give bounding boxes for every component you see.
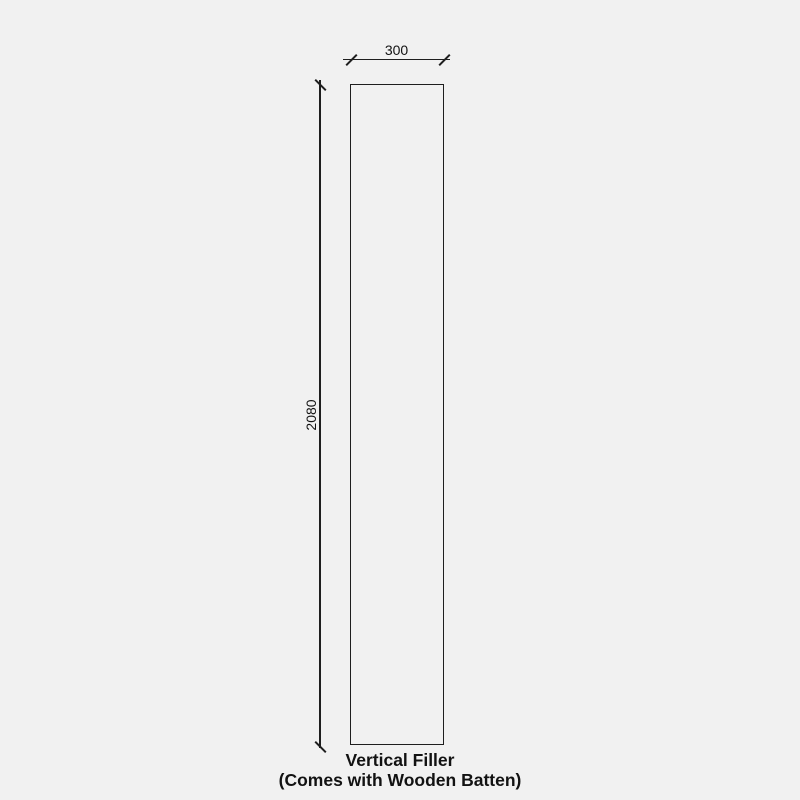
caption-line-2: (Comes with Wooden Batten) <box>200 771 600 791</box>
width-dimension-label: 300 <box>343 42 450 58</box>
panel-outline <box>350 84 444 745</box>
caption: Vertical Filler (Comes with Wooden Batte… <box>200 751 600 790</box>
width-dimension-line <box>343 59 450 61</box>
height-dimension-line <box>319 80 321 748</box>
height-dimension-label: 2080 <box>303 399 319 430</box>
drawing-canvas: 300 2080 Vertical Filler (Comes with Woo… <box>0 0 800 800</box>
caption-line-1: Vertical Filler <box>200 751 600 771</box>
